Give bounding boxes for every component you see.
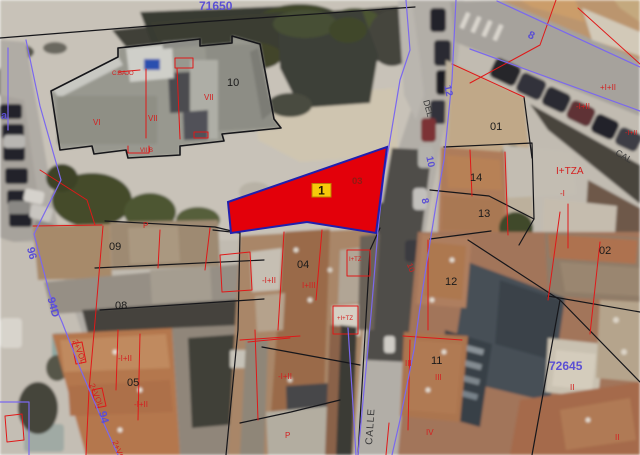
svg-text:I+TZ: I+TZ (349, 257, 362, 263)
svg-text:03: 03 (352, 176, 363, 187)
svg-text:VI: VI (93, 118, 101, 127)
svg-text:I+TZA: I+TZA (556, 166, 584, 177)
svg-text:02: 02 (599, 245, 611, 257)
svg-text:05: 05 (127, 377, 139, 389)
svg-text:10: 10 (227, 77, 239, 89)
svg-text:11: 11 (431, 355, 442, 367)
svg-text:III: III (405, 359, 412, 368)
svg-text:III: III (435, 373, 442, 382)
svg-text:+I+II: +I+II (600, 83, 616, 92)
svg-text:-I: -I (560, 189, 565, 198)
svg-text:I+III: I+III (302, 281, 316, 290)
svg-text:09: 09 (109, 241, 121, 253)
svg-text:71650: 71650 (199, 0, 233, 13)
svg-text:08: 08 (115, 300, 127, 312)
svg-text:-I+II: -I+II (118, 354, 132, 363)
svg-text:-I+II: -I+II (576, 102, 590, 111)
svg-text:-I+II: -I+II (278, 372, 292, 381)
svg-text:72645: 72645 (549, 359, 583, 373)
svg-text:1: 1 (318, 184, 325, 198)
svg-text:-I+II: -I+II (262, 276, 276, 285)
svg-text:-I+II: -I+II (134, 400, 148, 409)
svg-text:IV: IV (426, 428, 434, 437)
svg-text:-I+II: -I+II (625, 130, 637, 137)
svg-text:II: II (570, 383, 574, 392)
svg-text:12: 12 (445, 276, 457, 288)
svg-text:VII B: VII B (140, 148, 153, 154)
svg-text:14: 14 (470, 172, 482, 184)
svg-text:13: 13 (478, 208, 490, 220)
svg-text:P: P (143, 221, 148, 230)
svg-text:C.BAJO: C.BAJO (112, 71, 134, 77)
svg-text:01: 01 (490, 121, 502, 133)
svg-text:VII: VII (148, 114, 158, 123)
svg-text:VII: VII (204, 93, 214, 102)
svg-text:P: P (285, 431, 290, 440)
svg-text:04: 04 (297, 259, 309, 271)
svg-text:II: II (615, 433, 619, 442)
svg-text:+I+TZ: +I+TZ (337, 316, 353, 322)
svg-text:a: a (1, 110, 8, 122)
